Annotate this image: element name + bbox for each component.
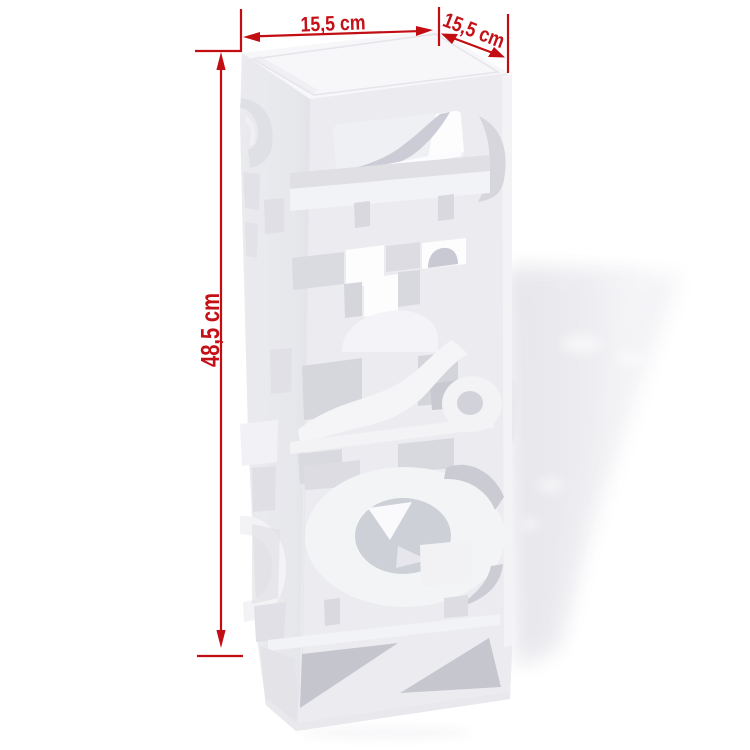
svg-text:15,5 cm: 15,5 cm — [300, 11, 366, 36]
svg-text:48,5 cm: 48,5 cm — [195, 293, 225, 367]
